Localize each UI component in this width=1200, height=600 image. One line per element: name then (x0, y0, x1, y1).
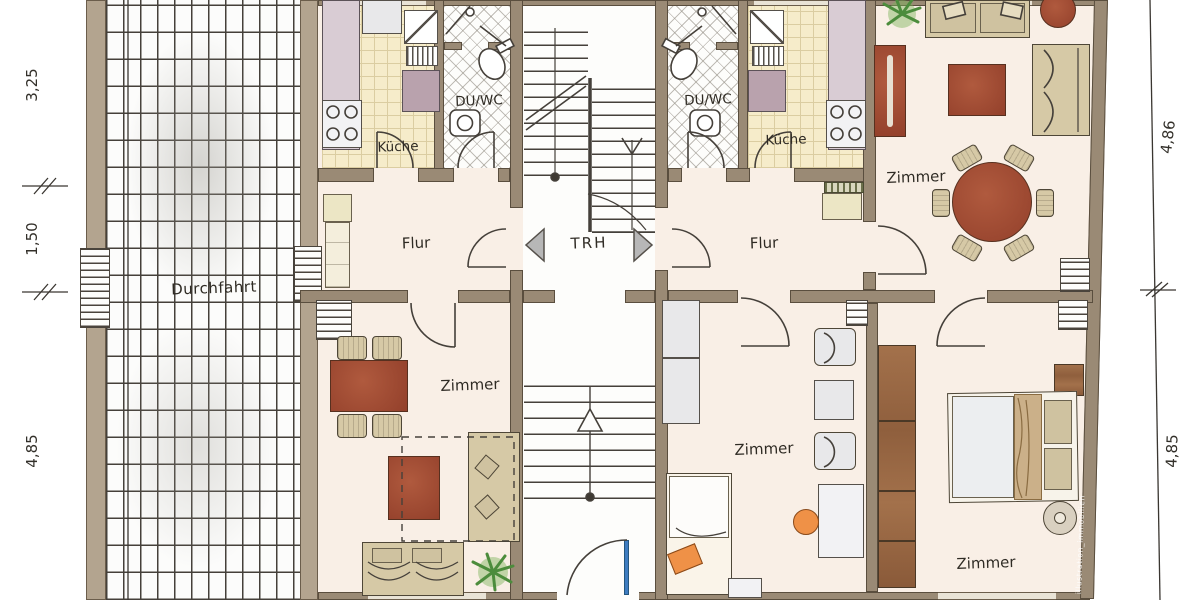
room-label-zimmer-top-right: Zimmer (886, 167, 946, 187)
room-label-zimmer-bottom-right: Zimmer (956, 553, 1016, 573)
dish-drainer (752, 46, 784, 66)
kitchen-sink (404, 10, 438, 44)
room-label-duwc-right: DU/WC (684, 91, 732, 109)
chair (932, 189, 950, 217)
chair (337, 336, 367, 360)
dimension-left-2: 1,50 (23, 209, 41, 269)
flur-cupboard (822, 193, 862, 220)
room-label-flur-left: Flur (401, 234, 430, 253)
middle-wall (625, 290, 655, 303)
room-label-flur-right: Flur (749, 234, 778, 253)
stairs-upper-left-flight (524, 30, 588, 176)
stairs-upper-right-flight (592, 78, 655, 233)
worktop (402, 70, 440, 112)
radiator (1058, 300, 1088, 330)
kitchen-bath-wall-right (738, 0, 748, 172)
shower-partition-right (716, 42, 738, 50)
sofa (468, 432, 520, 542)
shower-partition-left (444, 42, 462, 50)
mattress (669, 476, 729, 538)
flur-wall-right (726, 168, 750, 182)
window (754, 0, 834, 6)
armchair (814, 328, 856, 366)
dining-table-round (952, 162, 1032, 242)
wardrobe (662, 300, 700, 358)
room-label-kueche-right: Küche (765, 131, 807, 148)
bath-floor-right (668, 0, 738, 168)
room-label-trh: TRH (570, 233, 607, 252)
flur-wall-right (794, 168, 868, 182)
wardrobe (662, 358, 700, 424)
mattress (952, 396, 1014, 498)
shower-partition-right (668, 42, 690, 50)
window (938, 592, 1056, 600)
shower-partition-left (488, 42, 510, 50)
pillow (1044, 448, 1072, 490)
floor-plan: Durchfahrt Küche DU/WC DU/WC Küche Flur … (0, 0, 1200, 600)
armchair (1032, 44, 1090, 136)
blanket (1014, 394, 1042, 500)
stairwell-left-wall (510, 0, 523, 208)
flur-wall-left (318, 168, 374, 182)
room-label-duwc-left: DU/WC (455, 92, 503, 110)
chair (337, 414, 367, 438)
flur-shelf (325, 222, 350, 288)
wardrobe-divider (878, 490, 916, 492)
stool (728, 578, 762, 598)
flur-cupboard (323, 194, 352, 222)
kitchen-sink (750, 10, 784, 44)
pillow (372, 548, 402, 563)
stove (826, 100, 866, 148)
flur-wall-left (418, 168, 454, 182)
armchair (814, 432, 856, 470)
coffee-table (948, 64, 1006, 116)
dimension-right-1: 4,86 (1155, 106, 1180, 168)
wardrobe-divider (878, 420, 916, 422)
rooms-divider-wall (866, 303, 878, 592)
radiator (316, 300, 352, 340)
chair (1036, 189, 1054, 217)
sofa-cushion (980, 3, 1025, 33)
radiator (1060, 258, 1090, 292)
pillow (1044, 400, 1072, 444)
chair (372, 414, 402, 438)
flur-wall-left (498, 168, 510, 182)
side-table-center (1054, 512, 1066, 524)
dining-table (330, 360, 408, 412)
chair (372, 336, 402, 360)
middle-wall (458, 290, 510, 303)
side-table (388, 456, 440, 520)
dimension-left-3: 4,85 (23, 421, 41, 481)
sideboard-handle (887, 55, 893, 127)
wardrobe-row (878, 345, 916, 588)
room-label-zimmer-bottom-left: Zimmer (440, 375, 500, 395)
stairs-lower-flight (524, 385, 655, 499)
room-label-kueche-left: Küche (377, 138, 419, 155)
room-label-zimmer-bottom-middle: Zimmer (734, 439, 794, 459)
middle-wall (523, 290, 555, 303)
stairwell-right-wall (655, 0, 668, 208)
wardrobe-divider (878, 540, 916, 542)
worktop (748, 70, 786, 112)
pillow (412, 548, 442, 563)
dish-drainer (406, 46, 438, 66)
side-table (814, 380, 854, 420)
dimension-left-1: 3,25 (23, 55, 41, 115)
fridge-cabinet (362, 0, 402, 34)
livingroom-wall (863, 272, 876, 290)
dimension-right-2: 4,85 (1162, 421, 1182, 482)
stove (322, 100, 362, 148)
radiator (824, 182, 864, 193)
sofa-cushion (930, 3, 976, 33)
bath-floor-left (444, 0, 510, 168)
radiator (846, 300, 868, 326)
room-label-durchfahrt: Durchfahrt (171, 278, 257, 299)
gate-window-symbol (80, 248, 110, 328)
entrance-door (624, 540, 629, 595)
flur-wall-right (668, 168, 682, 182)
paving-shading (115, 320, 280, 570)
paving-shading (125, 30, 275, 300)
desk-chair (793, 509, 819, 535)
desk (818, 484, 864, 558)
